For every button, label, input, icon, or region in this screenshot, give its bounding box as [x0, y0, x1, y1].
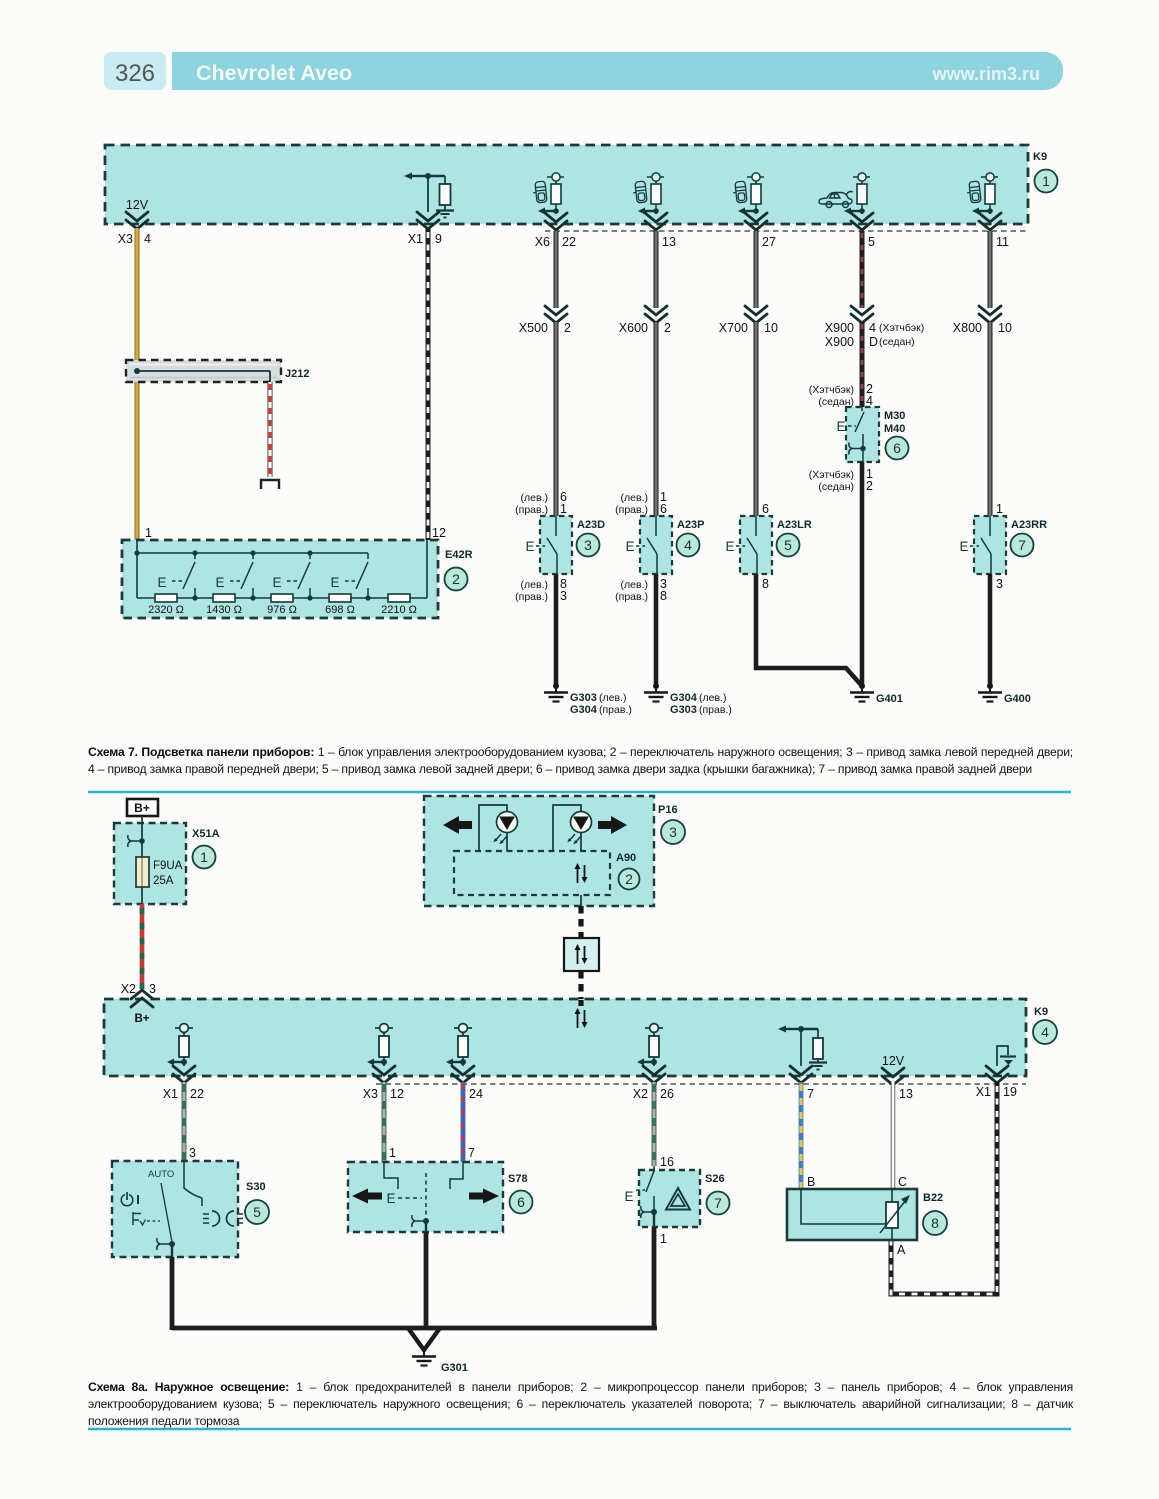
svg-text:4: 4 [684, 537, 692, 553]
svg-text:(прав.): (прав.) [515, 504, 548, 516]
svg-text:(лев.): (лев.) [621, 492, 648, 504]
svg-text:25A: 25A [153, 875, 174, 887]
svg-text:6: 6 [762, 502, 769, 516]
svg-text:1: 1 [1042, 173, 1050, 189]
svg-text:B: B [807, 1175, 815, 1189]
svg-text:G303: G303 [570, 692, 597, 704]
svg-text:3: 3 [189, 1146, 196, 1160]
svg-text:2: 2 [866, 479, 873, 493]
svg-text:A23D: A23D [577, 519, 605, 531]
svg-text:G401: G401 [876, 693, 903, 705]
svg-text:5: 5 [868, 235, 875, 249]
svg-text:(прав.): (прав.) [615, 591, 648, 603]
svg-text:5: 5 [253, 1204, 261, 1220]
svg-text:B22: B22 [923, 1192, 943, 1204]
svg-text:10: 10 [998, 321, 1012, 335]
svg-text:A23LR: A23LR [777, 519, 812, 531]
svg-text:G304: G304 [570, 704, 598, 716]
svg-text:26: 26 [660, 1087, 674, 1101]
svg-text:(Хэтчбэк): (Хэтчбэк) [879, 322, 924, 334]
svg-text:D: D [869, 335, 878, 349]
svg-text:(Хэтчбэк): (Хэтчбэк) [809, 384, 854, 396]
svg-text:(лев.): (лев.) [699, 692, 726, 704]
svg-text:27: 27 [762, 235, 776, 249]
svg-text:X900: X900 [825, 321, 854, 335]
svg-text:(лев.): (лев.) [521, 579, 548, 591]
svg-text:B+: B+ [134, 1013, 149, 1025]
svg-text:E: E [386, 1191, 395, 1206]
svg-text:6: 6 [660, 502, 667, 516]
svg-text:J212: J212 [285, 368, 309, 380]
svg-text:2: 2 [664, 321, 671, 335]
svg-text:E: E [525, 539, 534, 554]
svg-text:1: 1 [200, 849, 208, 865]
svg-text:C: C [898, 1175, 907, 1189]
svg-text:X1: X1 [976, 1085, 991, 1099]
svg-text:E: E [272, 575, 281, 590]
svg-text:7: 7 [468, 1146, 475, 1160]
svg-text:G400: G400 [1004, 693, 1031, 705]
svg-text:7: 7 [1018, 537, 1026, 553]
svg-text:S78: S78 [508, 1173, 528, 1185]
svg-text:E: E [624, 1189, 633, 1204]
svg-text:(прав.): (прав.) [599, 704, 632, 716]
svg-text:2210 Ω: 2210 Ω [381, 604, 417, 616]
svg-text:2: 2 [564, 321, 571, 335]
svg-text:A23P: A23P [677, 519, 705, 531]
svg-text:6: 6 [517, 1194, 525, 1210]
svg-text:E: E [836, 419, 845, 434]
svg-text:B+: B+ [134, 801, 150, 815]
svg-text:X1: X1 [408, 232, 423, 246]
svg-text:X3: X3 [118, 232, 133, 246]
svg-text:X800: X800 [953, 321, 982, 335]
svg-text:(лев.): (лев.) [599, 692, 626, 704]
svg-text:11: 11 [996, 235, 1009, 249]
svg-text:www.rim3.ru: www.rim3.ru [932, 64, 1040, 84]
svg-text:E: E [330, 575, 339, 590]
svg-text:2: 2 [625, 871, 633, 887]
svg-text:326: 326 [115, 60, 155, 87]
svg-text:Chevrolet Aveo: Chevrolet Aveo [196, 61, 352, 85]
svg-text:8: 8 [660, 589, 667, 603]
svg-text:M40: M40 [884, 423, 905, 435]
svg-text:(прав.): (прав.) [699, 704, 732, 716]
svg-text:19: 19 [1003, 1085, 1017, 1099]
svg-text:S26: S26 [705, 1173, 725, 1185]
svg-text:9: 9 [435, 232, 442, 246]
svg-text:X1: X1 [163, 1087, 178, 1101]
svg-text:6: 6 [893, 440, 901, 456]
svg-text:3: 3 [996, 577, 1003, 591]
svg-text:976 Ω: 976 Ω [267, 604, 297, 616]
svg-text:X2: X2 [121, 982, 136, 996]
svg-text:1430 Ω: 1430 Ω [206, 604, 242, 616]
svg-text:5: 5 [784, 537, 792, 553]
svg-text:16: 16 [660, 1155, 674, 1169]
svg-text:12: 12 [390, 1087, 404, 1101]
svg-text:4: 4 [1041, 1024, 1049, 1040]
svg-text:13: 13 [899, 1087, 913, 1101]
svg-text:12V: 12V [126, 198, 149, 212]
svg-text:3: 3 [584, 537, 592, 553]
svg-text:10: 10 [764, 321, 778, 335]
svg-text:1: 1 [389, 1146, 396, 1160]
svg-text:1: 1 [996, 502, 1003, 516]
svg-text:M30: M30 [884, 410, 905, 422]
svg-text:X500: X500 [519, 321, 548, 335]
svg-text:E: E [215, 575, 224, 590]
svg-text:(прав.): (прав.) [515, 591, 548, 603]
svg-text:A23RR: A23RR [1011, 519, 1047, 531]
svg-text:7: 7 [807, 1087, 814, 1101]
svg-text:8: 8 [762, 577, 769, 591]
svg-text:E: E [625, 539, 634, 554]
svg-text:G303: G303 [670, 704, 697, 716]
svg-text:8: 8 [931, 1215, 939, 1231]
svg-text:X6: X6 [535, 235, 550, 249]
svg-text:G304: G304 [670, 692, 698, 704]
svg-text:X700: X700 [719, 321, 748, 335]
svg-text:A90: A90 [616, 852, 636, 864]
svg-text:E: E [959, 539, 968, 554]
svg-text:(Хэтчбэк): (Хэтчбэк) [809, 469, 854, 481]
svg-text:1: 1 [145, 526, 152, 540]
svg-text:3: 3 [560, 589, 567, 603]
svg-text:S30: S30 [246, 1181, 266, 1193]
svg-text:698 Ω: 698 Ω [325, 604, 355, 616]
svg-text:(лев.): (лев.) [621, 579, 648, 591]
svg-text:3: 3 [149, 982, 156, 996]
svg-text:4: 4 [869, 321, 876, 335]
svg-text:4: 4 [144, 232, 151, 246]
svg-text:X51A: X51A [192, 828, 220, 840]
svg-text:12: 12 [432, 526, 446, 540]
svg-text:X2: X2 [633, 1087, 648, 1101]
svg-text:22: 22 [190, 1087, 204, 1101]
svg-text:13: 13 [662, 235, 676, 249]
svg-text:X600: X600 [619, 321, 648, 335]
svg-text:E42R: E42R [445, 549, 473, 561]
svg-text:K9: K9 [1033, 151, 1047, 163]
svg-text:1: 1 [560, 502, 567, 516]
svg-text:(прав.): (прав.) [615, 504, 648, 516]
svg-text:F9UA: F9UA [153, 860, 183, 872]
svg-text:2320 Ω: 2320 Ω [148, 604, 184, 616]
svg-text:(седан): (седан) [879, 336, 915, 348]
svg-text:3: 3 [669, 824, 677, 840]
svg-text:12V: 12V [882, 1054, 905, 1068]
svg-text:(седан): (седан) [818, 481, 854, 493]
svg-text:24: 24 [469, 1087, 483, 1101]
svg-text:2: 2 [452, 571, 460, 587]
svg-text:A: A [897, 1243, 906, 1257]
svg-text:X900: X900 [825, 335, 854, 349]
svg-text:22: 22 [562, 235, 576, 249]
svg-text:G301: G301 [441, 1362, 468, 1374]
svg-text:P16: P16 [658, 804, 678, 816]
svg-text:7: 7 [714, 1195, 722, 1211]
svg-text:K9: K9 [1034, 1006, 1048, 1018]
svg-text:E: E [157, 575, 166, 590]
svg-text:1: 1 [660, 1232, 667, 1246]
svg-text:(лев.): (лев.) [521, 492, 548, 504]
svg-text:X3: X3 [363, 1087, 378, 1101]
svg-text:E: E [725, 539, 734, 554]
svg-text:AUTO: AUTO [148, 1169, 174, 1180]
